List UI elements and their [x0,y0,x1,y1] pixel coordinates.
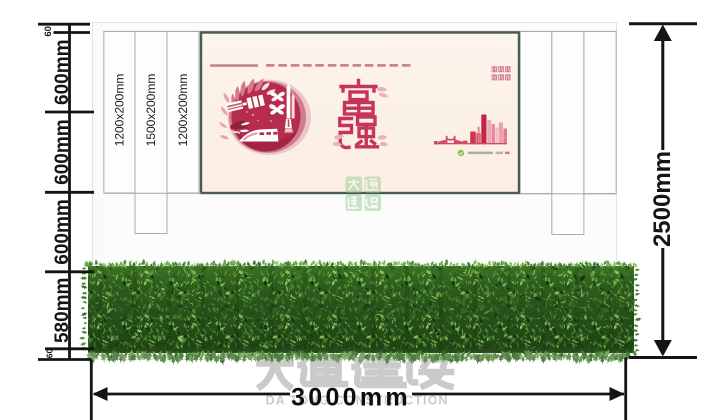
svg-text:3000mm: 3000mm [291,383,411,411]
svg-text:600mm: 600mm [52,119,73,185]
svg-text:1200x200mm: 1200x200mm [113,74,127,147]
svg-text:60: 60 [45,349,55,359]
svg-text:600mm: 600mm [52,39,73,105]
svg-text:1200x200mm: 1200x200mm [176,74,190,147]
svg-text:1500x200mm: 1500x200mm [144,74,158,147]
svg-text:60: 60 [43,26,54,37]
svg-text:580mm: 580mm [52,278,73,344]
svg-text:600mm: 600mm [52,199,73,265]
svg-text:2500mm: 2500mm [649,151,676,247]
